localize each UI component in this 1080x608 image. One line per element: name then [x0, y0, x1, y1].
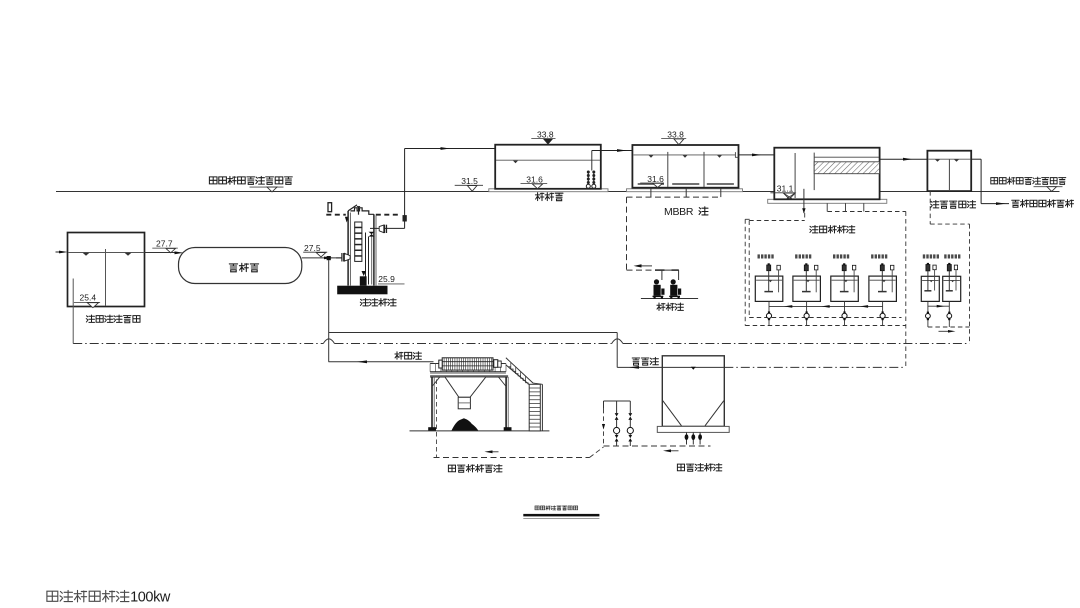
svg-text:25.9: 25.9	[378, 274, 395, 284]
svg-text:33.8: 33.8	[667, 129, 684, 139]
svg-text:31.5: 31.5	[461, 176, 478, 186]
svg-text:27.5: 27.5	[304, 243, 321, 253]
svg-text:27.7: 27.7	[156, 238, 173, 248]
svg-text:31.1: 31.1	[777, 184, 794, 194]
svg-text:33.8: 33.8	[537, 129, 554, 139]
svg-text:31.6: 31.6	[647, 174, 664, 184]
svg-text:31.6: 31.6	[526, 174, 543, 184]
svg-text:100kw: 100kw	[130, 590, 171, 606]
svg-text:MBBR: MBBR	[664, 206, 694, 218]
svg-text:25.4: 25.4	[80, 293, 97, 303]
